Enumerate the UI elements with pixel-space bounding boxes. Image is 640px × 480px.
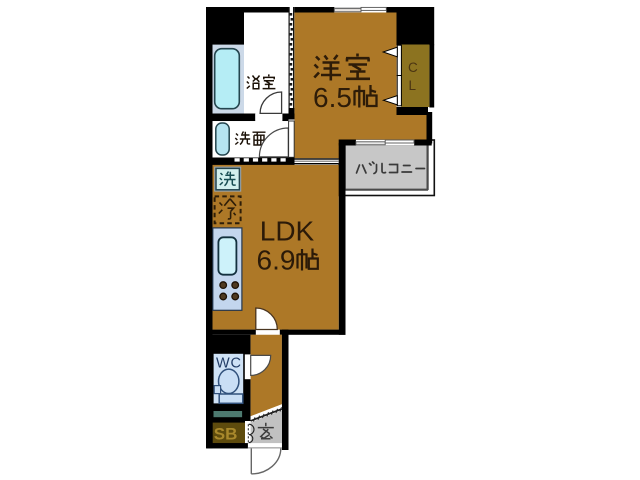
svg-text:6.5: 6.5 — [313, 82, 352, 113]
svg-text:L: L — [409, 78, 417, 93]
svg-text:6.9: 6.9 — [257, 245, 296, 276]
svg-text:SB: SB — [214, 425, 238, 444]
svg-text:LDK: LDK — [260, 216, 315, 247]
svg-text:C: C — [408, 60, 418, 75]
